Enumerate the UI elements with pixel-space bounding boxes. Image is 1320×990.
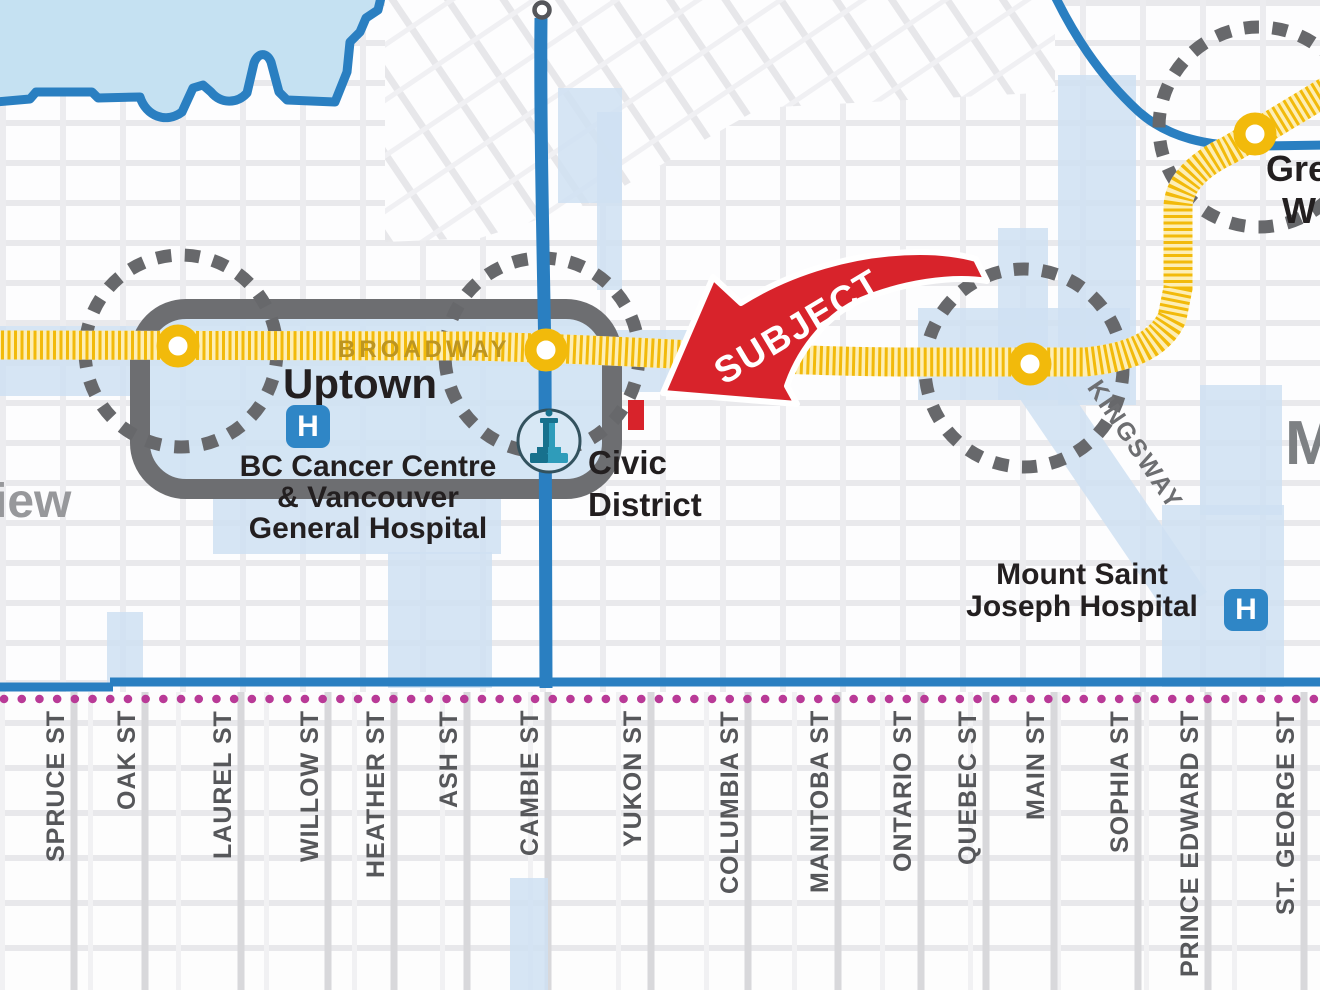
street-label: MAIN ST xyxy=(1022,710,1056,982)
msj-line2: Joseph Hospital xyxy=(932,591,1232,623)
great-northern-partial-line1: Gre xyxy=(1266,150,1320,187)
civic-district-line2: District xyxy=(588,484,702,526)
civic-district-label: Civic District xyxy=(588,442,702,526)
cambie-terminus-ring xyxy=(535,3,550,18)
street-label: ONTARIO ST xyxy=(889,710,923,982)
street-label: YUKON ST xyxy=(619,710,653,982)
city-hall-icon xyxy=(518,410,580,473)
street-label: SPRUCE ST xyxy=(42,710,76,982)
street-label: COLUMBIA ST xyxy=(716,710,750,982)
road-boundary-16th xyxy=(0,682,1320,687)
hospital-icon-msj: H xyxy=(1224,589,1268,631)
great-northern-partial-line2: W xyxy=(1282,192,1316,229)
street-label: OAK ST xyxy=(113,710,147,982)
street-label: MANITOBA ST xyxy=(806,710,840,982)
fairview-partial-label: iew xyxy=(0,477,71,527)
bc-cancer-line1: BC Cancer Centre xyxy=(218,451,518,482)
street-label: PRINCE EDWARD ST xyxy=(1176,710,1210,982)
transit-neighbourhood-map: BROADWAY Uptown H BC Cancer Centre & Van… xyxy=(0,0,1320,990)
street-label: ST. GEORGE ST xyxy=(1272,710,1306,982)
street-label: LAUREL ST xyxy=(209,710,243,982)
street-label: SOPHIA ST xyxy=(1106,710,1140,982)
street-label: CAMBIE ST xyxy=(516,710,550,982)
civic-district-line1: Civic xyxy=(588,442,702,484)
msj-line1: Mount Saint xyxy=(932,559,1232,591)
bc-cancer-line2: & Vancouver xyxy=(218,482,518,513)
street-label: QUEBEC ST xyxy=(954,710,988,982)
mount-saint-joseph-label: Mount Saint Joseph Hospital xyxy=(932,559,1232,623)
hospital-icon-vgh: H xyxy=(286,405,330,448)
street-label: HEATHER ST xyxy=(362,710,396,982)
bc-cancer-vgh-label: BC Cancer Centre & Vancouver General Hos… xyxy=(218,451,518,544)
street-label: ASH ST xyxy=(435,710,469,982)
street-label: WILLOW ST xyxy=(296,710,330,982)
bc-cancer-line3: General Hospital xyxy=(218,513,518,544)
uptown-area-label: Uptown xyxy=(260,362,460,406)
subject-location-marker xyxy=(628,400,644,430)
mount-pleasant-partial-label: M xyxy=(1285,412,1320,476)
